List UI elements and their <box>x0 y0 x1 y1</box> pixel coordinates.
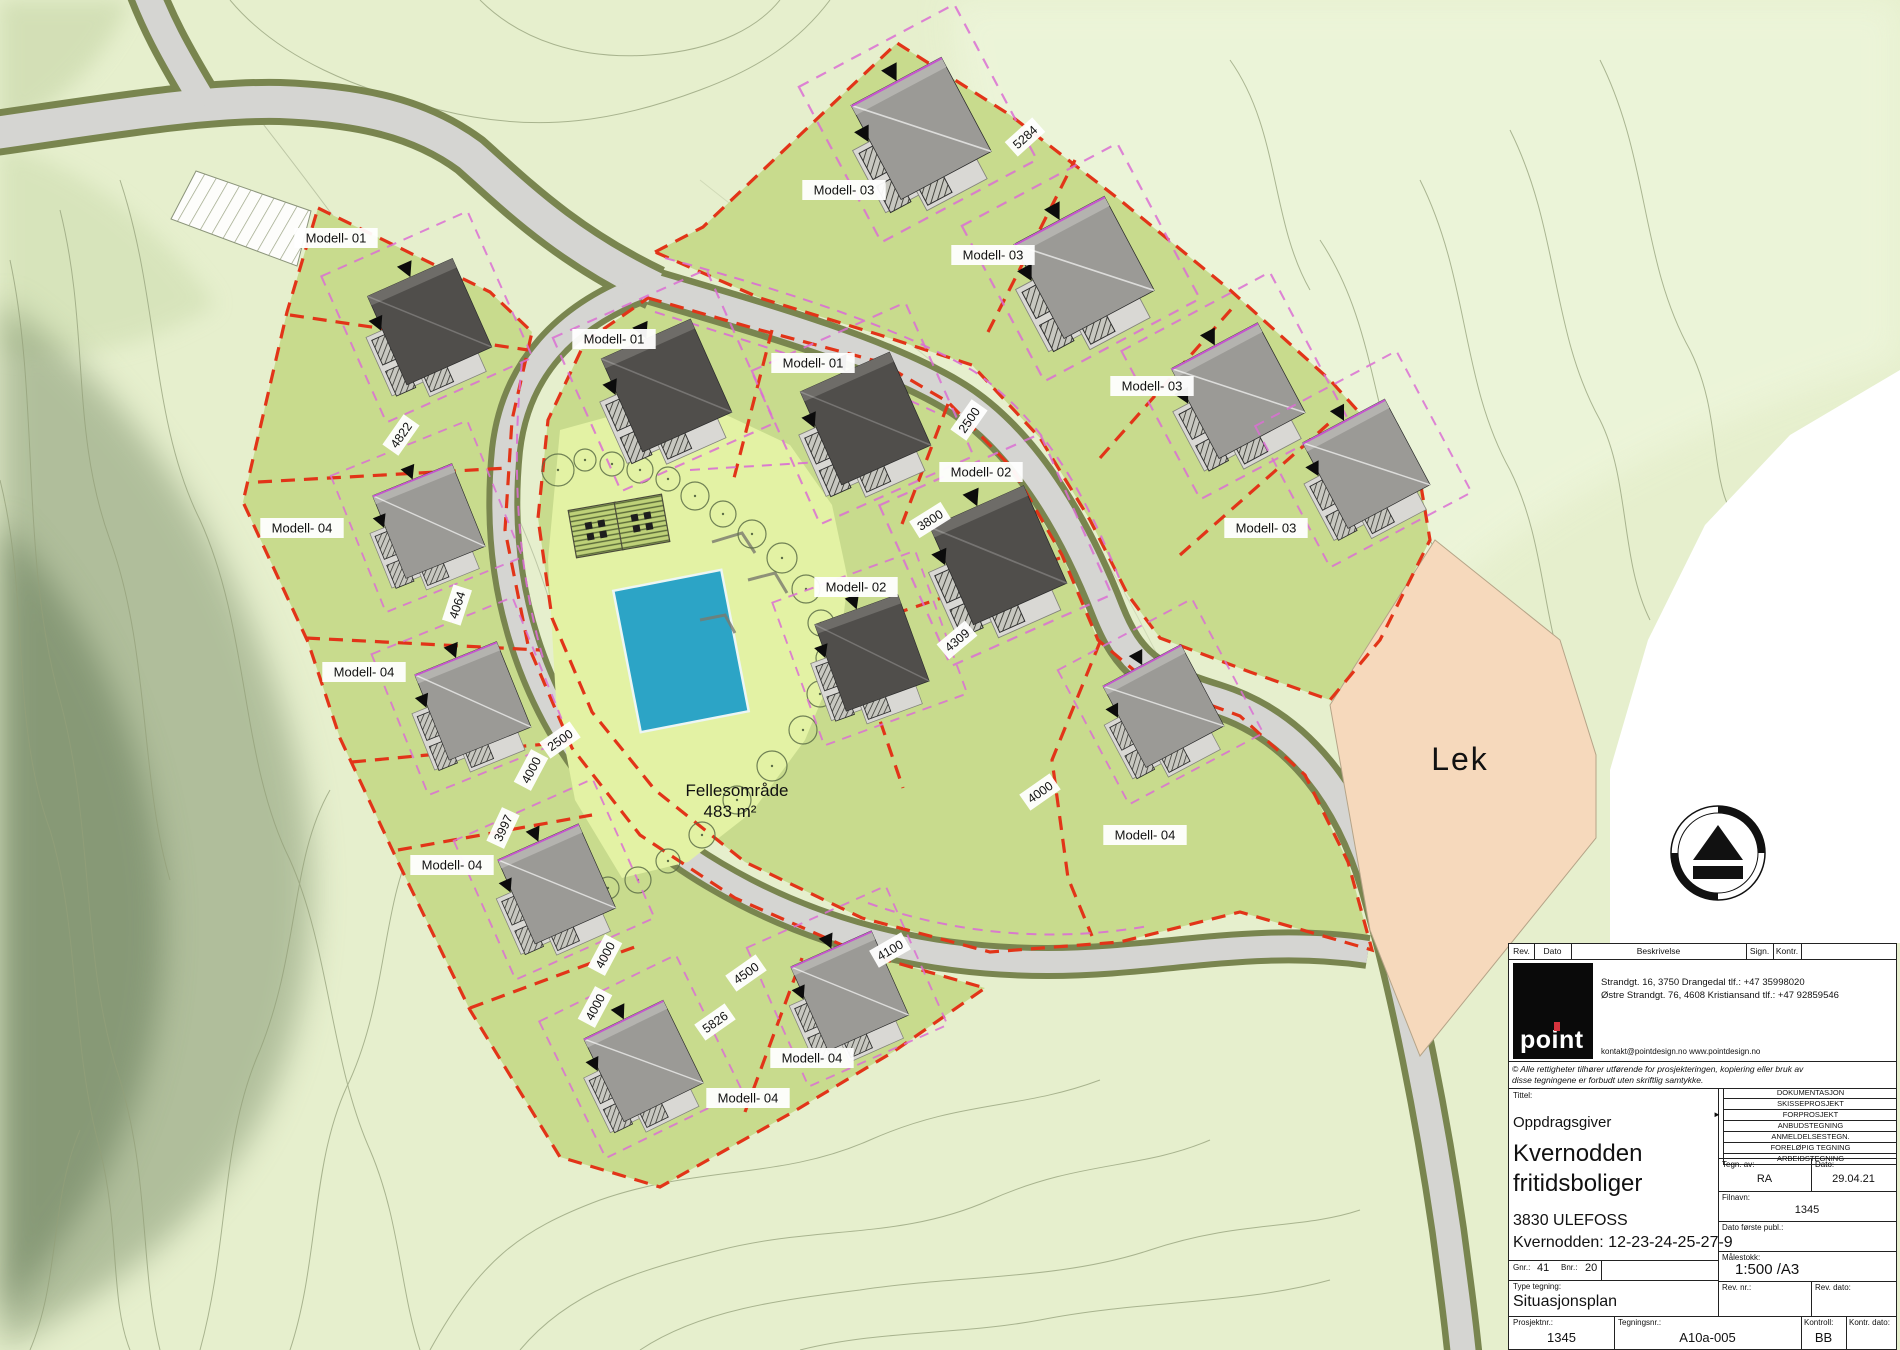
checklist-item: SKISSEPROSJEKT <box>1724 1099 1897 1110</box>
checklist-item: FORELØPIG TEGNING <box>1724 1143 1897 1154</box>
filnavn-label: Filnavn: <box>1722 1193 1750 1202</box>
svg-text:Modell- 04: Modell- 04 <box>782 1051 843 1066</box>
active-phase-marker-icon: ► <box>1713 1110 1721 1120</box>
lot-label: Modell- 04 <box>706 1088 789 1108</box>
svg-text:Modell- 01: Modell- 01 <box>306 231 367 246</box>
tegningsnr-label: Tegningsnr.: <box>1618 1318 1661 1327</box>
svg-text:483 m²: 483 m² <box>704 802 757 821</box>
lot-label: Modell- 03 <box>951 245 1034 265</box>
gnr-label: Gnr.: <box>1513 1263 1530 1272</box>
sign-col-header: Sign. <box>1746 946 1773 956</box>
point-logo: point <box>1513 963 1593 1059</box>
lot-label: Modell- 01 <box>294 228 377 248</box>
tegningsnr-value: A10a-005 <box>1614 1330 1801 1345</box>
svg-text:Modell- 01: Modell- 01 <box>584 332 645 347</box>
project-plots: Kvernodden: 12-23-24-25-27-9 <box>1513 1234 1733 1252</box>
filnavn-value: 1345 <box>1718 1204 1896 1216</box>
project-address: 3830 ULEFOSS <box>1513 1212 1628 1230</box>
project-title-line1: Kvernodden <box>1513 1140 1642 1168</box>
lot-label: Modell- 04 <box>260 518 343 538</box>
lot-label: Modell- 02 <box>939 462 1022 482</box>
checklist-item: DOKUMENTASJON <box>1724 1088 1897 1099</box>
svg-text:Modell- 04: Modell- 04 <box>718 1091 779 1106</box>
svg-text:Modell- 03: Modell- 03 <box>814 183 875 198</box>
tittel-label: Tittel: <box>1513 1091 1532 1100</box>
north-arrow-icon <box>1671 806 1765 900</box>
malestokk-value: 1:500 /A3 <box>1735 1261 1799 1278</box>
rev-col-header: Rev. <box>1509 946 1534 956</box>
svg-text:Modell- 04: Modell- 04 <box>272 521 333 536</box>
svg-text:Modell- 04: Modell- 04 <box>334 665 395 680</box>
logo-dot <box>1554 1022 1560 1031</box>
lek-label: Lek <box>1431 741 1489 777</box>
bnr-value: 20 <box>1585 1262 1597 1274</box>
kontroll-value: BB <box>1801 1330 1846 1345</box>
svg-text:Modell- 04: Modell- 04 <box>422 858 483 873</box>
svg-text:Modell- 02: Modell- 02 <box>951 465 1012 480</box>
svg-text:Modell- 04: Modell- 04 <box>1115 828 1176 843</box>
dato-value: 29.04.21 <box>1811 1173 1896 1185</box>
checklist-item: ►FORPROSJEKT <box>1724 1110 1897 1121</box>
svg-text:Modell- 03: Modell- 03 <box>963 248 1024 263</box>
lot-label: Modell- 04 <box>322 662 405 682</box>
client-name: Oppdragsgiver <box>1513 1114 1611 1131</box>
prosjektnr-value: 1345 <box>1509 1330 1614 1345</box>
kontr-col-header: Kontr. <box>1773 946 1801 956</box>
lot-label: Modell- 04 <box>770 1048 853 1068</box>
kontr-dato-label: Kontr. dato: <box>1849 1318 1890 1327</box>
lot-label: Modell- 01 <box>771 353 854 373</box>
dato-col-header: Dato <box>1534 946 1571 956</box>
tegn-av-label: Tegn. av: <box>1722 1160 1754 1169</box>
lot-label: Modell- 04 <box>410 855 493 875</box>
gnr-value: 41 <box>1537 1262 1549 1274</box>
dato-forste-publ-label: Dato første publ.: <box>1722 1223 1783 1232</box>
logo-text: point <box>1520 1026 1584 1055</box>
firm-contact: kontakt@pointdesign.no www.pointdesign.n… <box>1601 1047 1760 1056</box>
checklist-item: ANMELDELSESTEGN. <box>1724 1132 1897 1143</box>
kontroll-label: Kontroll: <box>1804 1318 1833 1327</box>
svg-text:Modell- 03: Modell- 03 <box>1122 379 1183 394</box>
checklist: DOKUMENTASJONSKISSEPROSJEKT►FORPROSJEKTA… <box>1723 1088 1897 1165</box>
copyright-note: © Alle rettigheter tilhører utførende fo… <box>1512 1064 1892 1086</box>
lot-label: Modell- 03 <box>802 180 885 200</box>
rev-nr-label: Rev. nr.: <box>1722 1283 1751 1292</box>
project-title-line2: fritidsboliger <box>1513 1170 1642 1198</box>
checklist-item: ANBUDSTEGNING <box>1724 1121 1897 1132</box>
title-block: Rev. Dato Beskrivelse Sign. Kontr. point… <box>1508 943 1897 1350</box>
prosjektnr-label: Prosjektnr.: <box>1513 1318 1553 1327</box>
tegn-av-value: RA <box>1718 1173 1811 1185</box>
svg-text:Modell- 03: Modell- 03 <box>1236 521 1297 536</box>
bnr-label: Bnr.: <box>1561 1263 1577 1272</box>
lot-label: Modell- 03 <box>1224 518 1307 538</box>
rev-dato-label: Rev. dato: <box>1815 1283 1851 1292</box>
svg-text:Fellesområde: Fellesområde <box>686 781 789 800</box>
svg-text:Modell- 01: Modell- 01 <box>783 356 844 371</box>
lot-label: Modell- 03 <box>1110 376 1193 396</box>
lot-label: Modell- 01 <box>572 329 655 349</box>
firm-address: Strandgt. 16, 3750 Drangedal tlf.: +47 3… <box>1601 976 1839 1002</box>
type-tegning-value: Situasjonsplan <box>1513 1293 1617 1311</box>
type-tegning-label: Type tegning: <box>1513 1282 1561 1291</box>
situasjonsplan-sheet: Modell- 01Modell- 01Modell- 01Modell- 03… <box>0 0 1900 1350</box>
svg-text:Modell- 02: Modell- 02 <box>826 580 887 595</box>
beskrivelse-col-header: Beskrivelse <box>1571 946 1746 956</box>
lot-label: Modell- 04 <box>1103 825 1186 845</box>
dato-label: Dato: <box>1815 1160 1834 1169</box>
lot-label: Modell- 02 <box>814 577 897 597</box>
